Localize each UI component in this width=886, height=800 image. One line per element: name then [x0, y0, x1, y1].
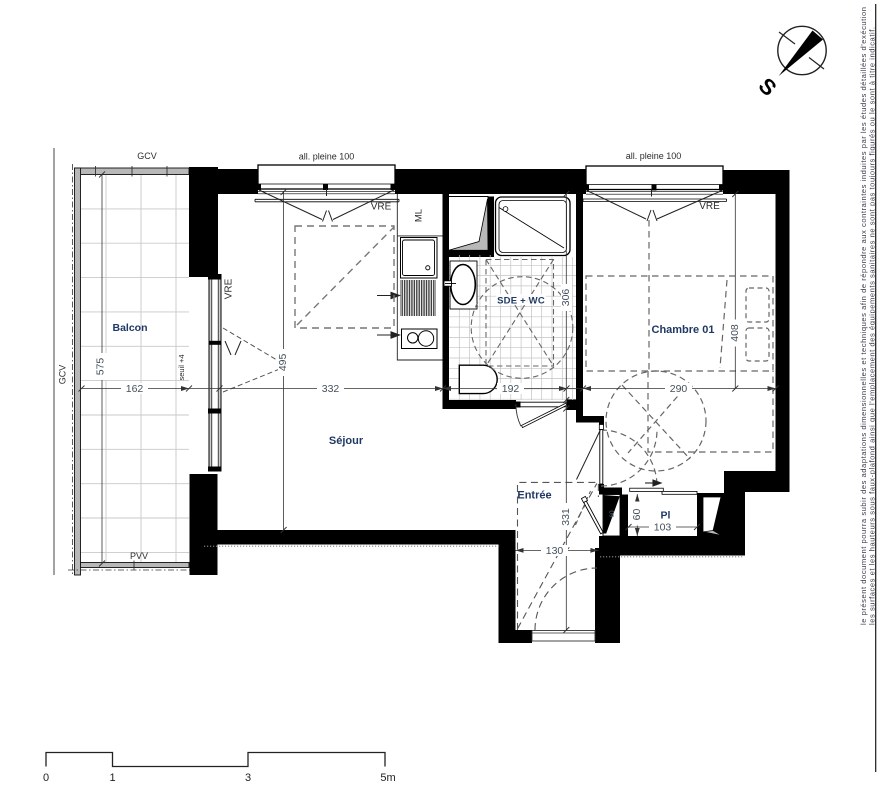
svg-text:S: S	[754, 73, 782, 101]
svg-text:575: 575	[94, 358, 106, 376]
svg-text:PVV: PVV	[130, 551, 148, 561]
svg-text:306: 306	[560, 289, 572, 307]
svg-text:192: 192	[502, 383, 520, 395]
svg-text:495: 495	[277, 353, 289, 371]
svg-text:all. pleine 100: all. pleine 100	[626, 151, 682, 161]
svg-text:1: 1	[109, 772, 115, 784]
svg-text:332: 332	[322, 383, 340, 395]
svg-text:VRE: VRE	[699, 201, 720, 212]
svg-text:VRE: VRE	[371, 202, 392, 213]
svg-text:331: 331	[560, 508, 572, 526]
svg-text:SDE + WC: SDE + WC	[497, 296, 545, 307]
svg-text:60: 60	[609, 510, 616, 518]
svg-text:103: 103	[654, 522, 672, 534]
svg-text:Balcon: Balcon	[112, 322, 147, 334]
svg-text:130: 130	[546, 545, 564, 557]
svg-text:ML: ML	[414, 209, 425, 222]
svg-text:60: 60	[631, 509, 643, 521]
svg-text:GCV: GCV	[57, 365, 67, 385]
svg-text:290: 290	[670, 383, 688, 395]
svg-text:5m: 5m	[380, 772, 395, 784]
svg-text:408: 408	[729, 324, 741, 342]
svg-text:Chambre 01: Chambre 01	[652, 324, 715, 336]
svg-text:Séjour: Séjour	[329, 435, 364, 447]
svg-text:seuil +4: seuil +4	[177, 354, 186, 380]
svg-text:GCV: GCV	[137, 151, 157, 161]
svg-text:Pl: Pl	[661, 510, 671, 522]
svg-text:VRE: VRE	[224, 278, 235, 299]
svg-text:3: 3	[245, 772, 251, 784]
svg-text:les surfaces et les hauteurs s: les surfaces et les hauteurs sous faux-p…	[867, 27, 876, 625]
svg-text:all. pleine 100: all. pleine 100	[299, 152, 355, 162]
svg-text:Entrée: Entrée	[517, 490, 551, 502]
svg-text:0: 0	[43, 772, 49, 784]
svg-text:162: 162	[126, 383, 144, 395]
